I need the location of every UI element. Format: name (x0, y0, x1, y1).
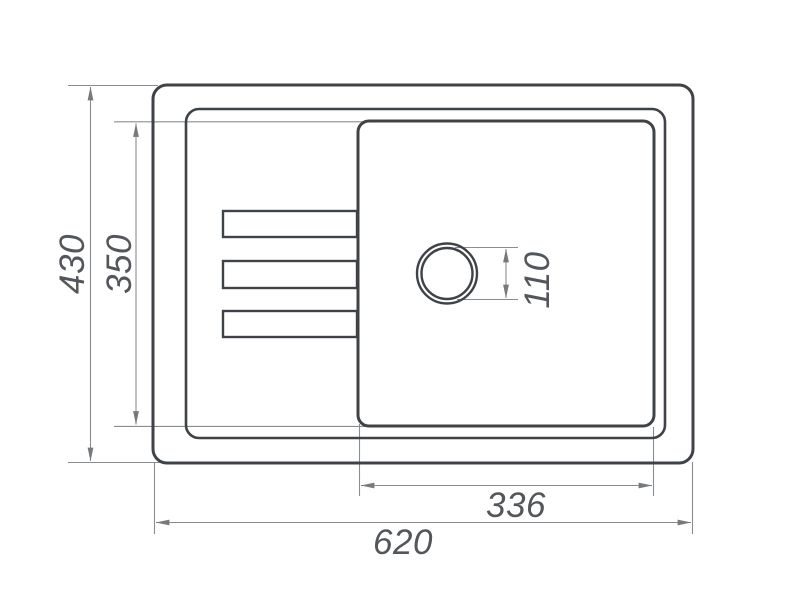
drainboard-rib-2 (223, 261, 357, 288)
drain-outer-ring (417, 244, 477, 304)
overall-width-label: 620 (373, 523, 433, 562)
drainboard-rib-1 (223, 211, 357, 237)
drain-diameter-label: 110 (518, 251, 557, 308)
bowl-width-label: 336 (486, 486, 546, 525)
overall-height-label: 430 (53, 234, 92, 294)
bowl-height-label: 350 (100, 234, 139, 294)
drain-hole (422, 248, 473, 299)
drawing-canvas: 430 350 110 336 620 (0, 0, 800, 600)
sink-technical-drawing: 430 350 110 336 620 (0, 0, 800, 600)
drainboard-rib-3 (223, 311, 357, 337)
